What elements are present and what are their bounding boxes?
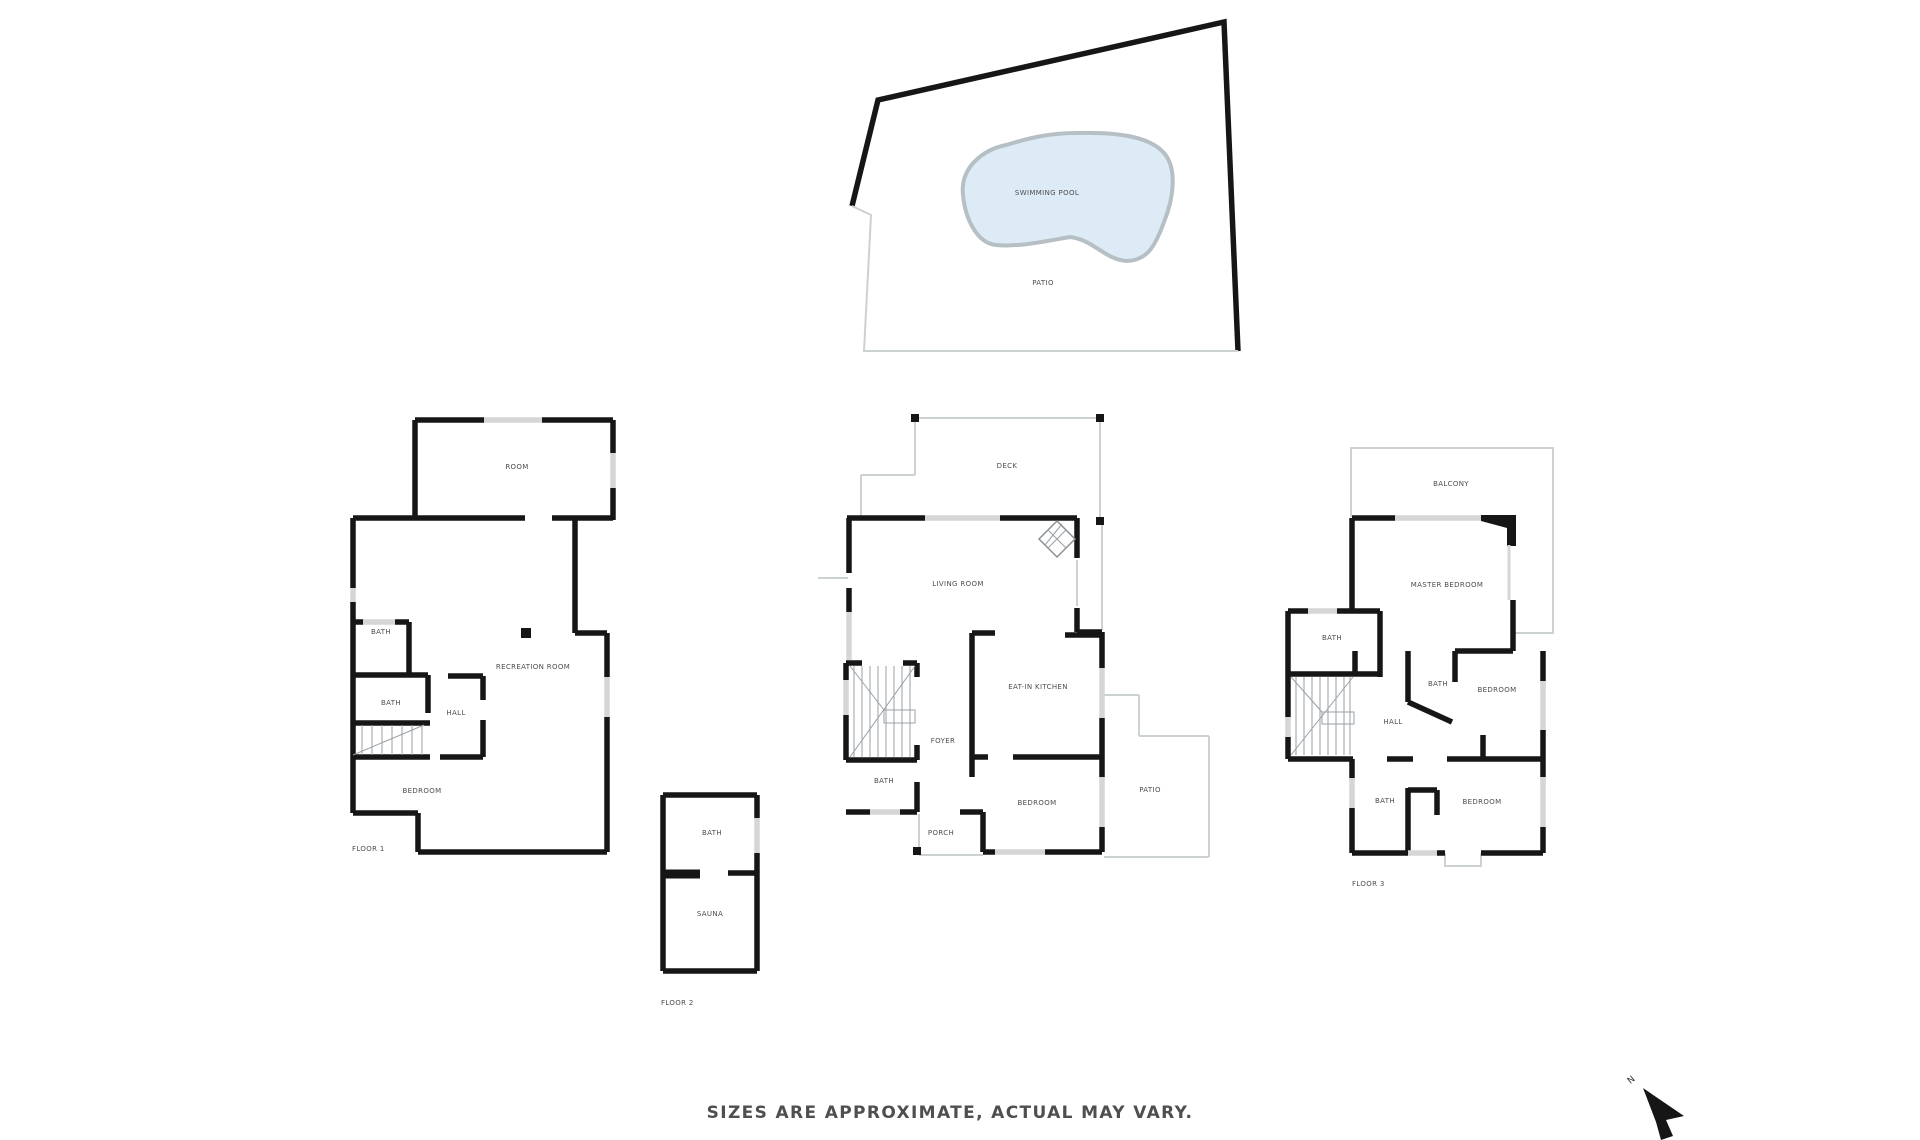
floor-plan-page: SWIMMING POOL PATIO ROOM BATH BATH HALL … <box>0 0 1920 1140</box>
floor2-plan: BATH SAUNA FLOOR 2 <box>661 795 757 1007</box>
floor3-stairs-landing <box>1322 712 1354 724</box>
floor1-bath-lower-label: BATH <box>381 699 401 707</box>
floor2-sauna-label: SAUNA <box>697 910 723 918</box>
foyer-label: FOYER <box>931 737 955 745</box>
porch-label: PORCH <box>928 829 954 837</box>
main-floor-plan: DECK LIVING ROOM EAT-IN KITCHEN FOYER BA… <box>818 414 1209 857</box>
floor1-stairs <box>353 725 424 755</box>
swimming-pool-label: SWIMMING POOL <box>1015 189 1079 197</box>
floor1-plan: ROOM BATH BATH HALL RECREATION ROOM BEDR… <box>352 420 613 853</box>
deck-post <box>1096 414 1104 422</box>
floor1-bath-upper-label: BATH <box>371 628 391 636</box>
floor2-walls <box>663 795 757 971</box>
main-bath-label: BATH <box>874 777 894 785</box>
porch-post <box>913 847 921 855</box>
floor3-bath-lower-label: BATH <box>1375 797 1395 805</box>
north-arrow-icon <box>1643 1088 1684 1140</box>
disclaimer-text: SIZES ARE APPROXIMATE, ACTUAL MAY VARY. <box>707 1103 1194 1123</box>
balcony-label: BALCONY <box>1433 480 1469 488</box>
deck-post <box>911 414 919 422</box>
floor1-room-label: ROOM <box>505 463 528 471</box>
main-bedroom-label: BEDROOM <box>1018 799 1057 807</box>
fireplace <box>1039 521 1075 557</box>
site-plan: SWIMMING POOL PATIO <box>852 22 1238 351</box>
master-bedroom-label: MASTER BEDROOM <box>1411 581 1484 589</box>
floor1-column <box>521 628 531 638</box>
floor2-caption: FLOOR 2 <box>661 999 694 1007</box>
living-room-label: LIVING ROOM <box>932 580 983 588</box>
floorplan-svg: SWIMMING POOL PATIO ROOM BATH BATH HALL … <box>0 0 1920 1140</box>
floor1-caption: FLOOR 1 <box>352 845 385 853</box>
kitchen-label: EAT-IN KITCHEN <box>1008 683 1068 691</box>
floor2-bath-label: BATH <box>702 829 722 837</box>
floor1-recreation-label: RECREATION ROOM <box>496 663 570 671</box>
floor3-bedroom-lower-label: BEDROOM <box>1463 798 1502 806</box>
north-letter: N <box>1626 1074 1638 1086</box>
main-patio-label: PATIO <box>1139 786 1161 794</box>
floor3-bath-upper-left-label: BATH <box>1322 634 1342 642</box>
floor1-bedroom-label: BEDROOM <box>403 787 442 795</box>
site-patio-label: PATIO <box>1032 279 1054 287</box>
floor3-hall-label: HALL <box>1383 718 1402 726</box>
floor1-walls <box>353 420 613 852</box>
floor3-caption: FLOOR 3 <box>1352 880 1385 888</box>
floor3-plan: BALCONY MASTER BEDROOM BATH HALL BATH BE… <box>1288 448 1553 888</box>
floor3-corner-chimney <box>1481 515 1516 546</box>
main-floor-stairs <box>850 666 915 757</box>
floor1-hall-label: HALL <box>446 709 465 717</box>
deck-post <box>1096 517 1104 525</box>
floor3-bedroom-upper-label: BEDROOM <box>1478 686 1517 694</box>
floor3-bath-middle-label: BATH <box>1428 680 1448 688</box>
north-compass: N <box>1626 1074 1684 1140</box>
deck-label: DECK <box>997 462 1018 470</box>
